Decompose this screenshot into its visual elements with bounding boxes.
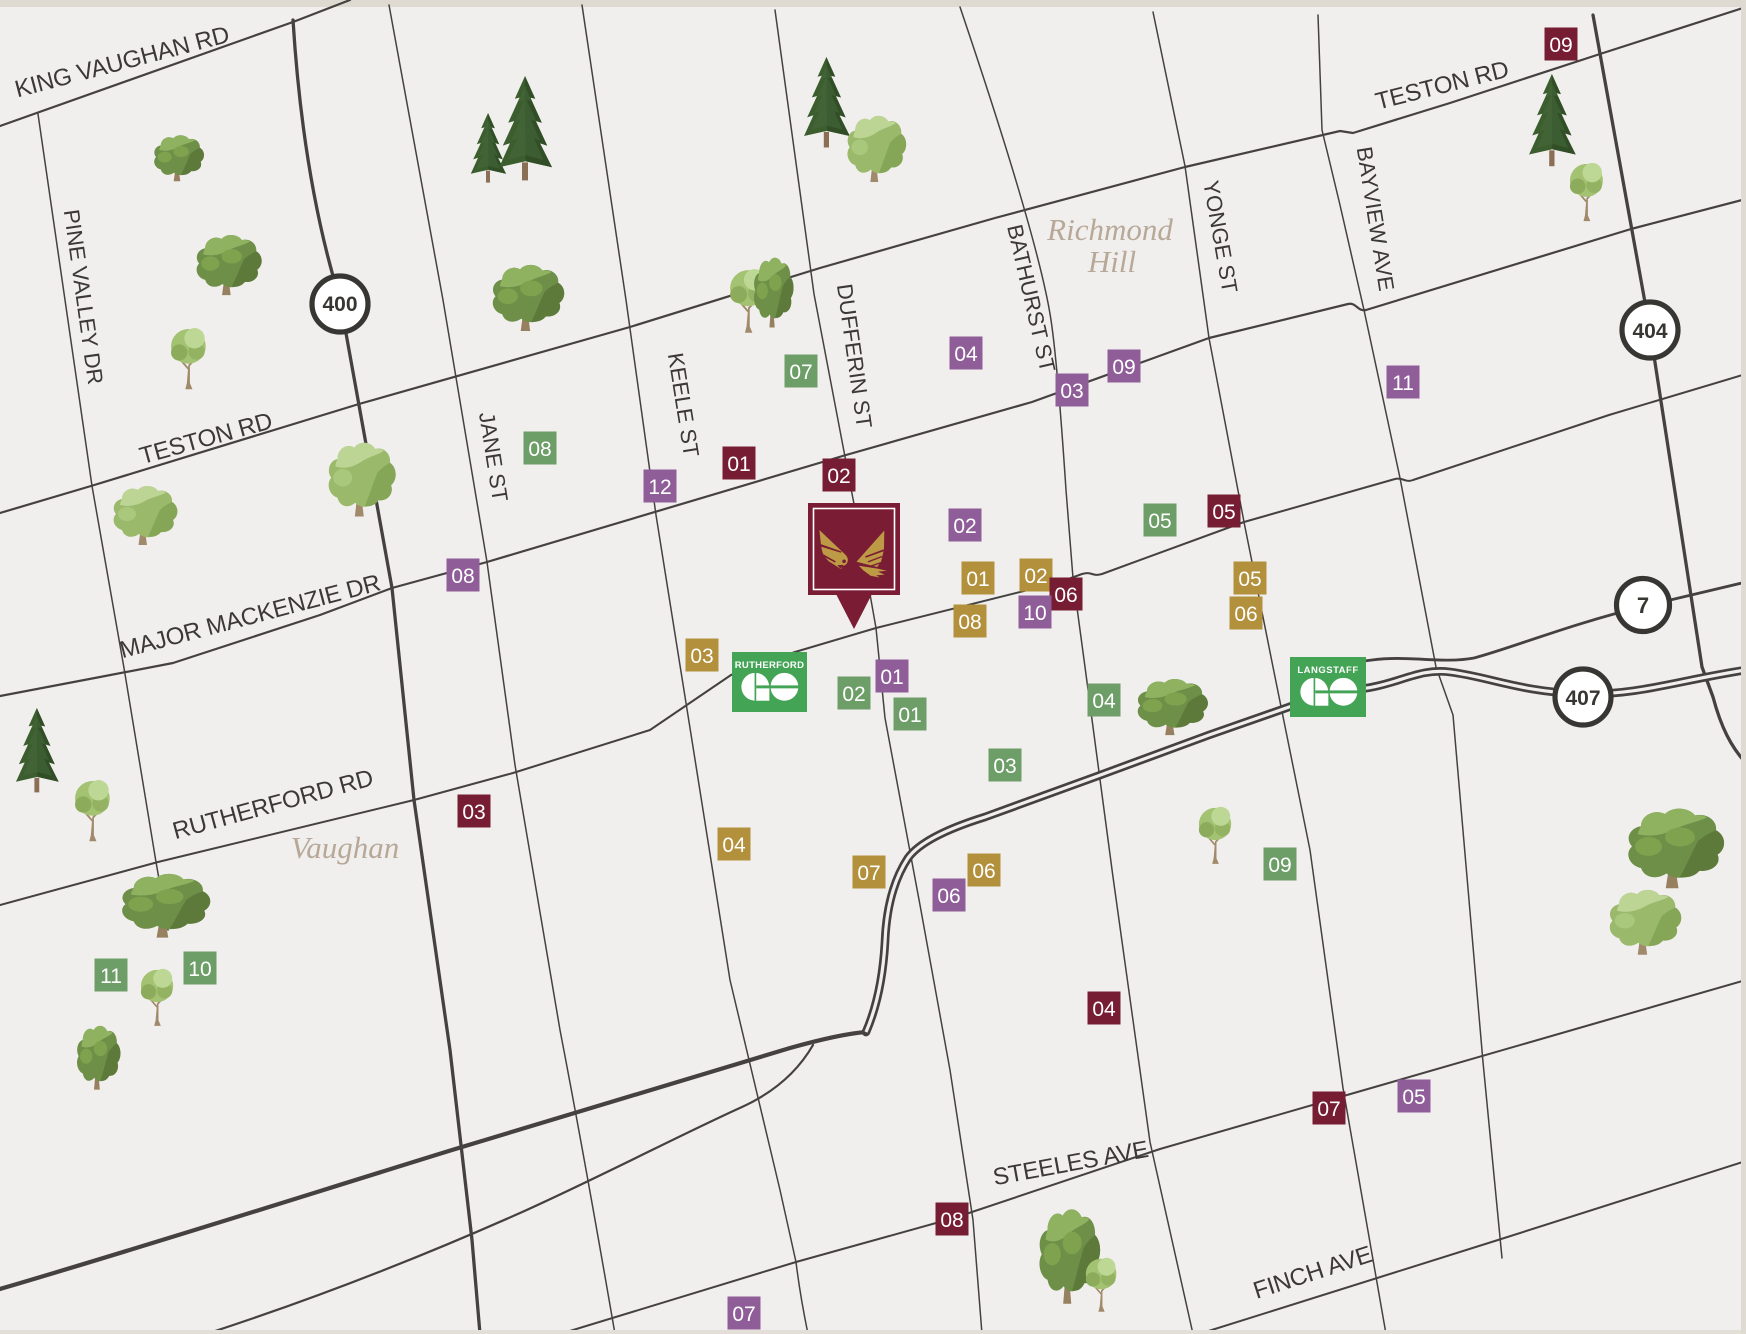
svg-text:11: 11 [1392, 372, 1414, 395]
svg-text:02: 02 [953, 515, 976, 538]
svg-text:Vaughan: Vaughan [291, 830, 400, 865]
svg-text:04: 04 [954, 343, 978, 366]
svg-text:Hill: Hill [1087, 244, 1136, 279]
svg-text:09: 09 [1268, 854, 1291, 877]
svg-text:02: 02 [1024, 565, 1047, 588]
svg-text:7: 7 [1637, 593, 1649, 618]
svg-text:02: 02 [827, 465, 850, 488]
svg-text:12: 12 [648, 476, 671, 499]
svg-text:08: 08 [528, 438, 551, 461]
svg-text:03: 03 [690, 645, 713, 668]
svg-text:05: 05 [1212, 501, 1235, 524]
svg-text:407: 407 [1565, 687, 1600, 710]
svg-text:01: 01 [898, 704, 921, 727]
svg-text:06: 06 [972, 860, 995, 883]
svg-text:10: 10 [188, 958, 211, 981]
svg-text:05: 05 [1238, 568, 1261, 591]
svg-text:04: 04 [1092, 998, 1116, 1021]
svg-text:07: 07 [732, 1303, 755, 1326]
svg-text:LANGSTAFF: LANGSTAFF [1297, 665, 1358, 676]
svg-text:04: 04 [1092, 690, 1116, 713]
svg-text:01: 01 [880, 666, 903, 689]
svg-text:03: 03 [1060, 380, 1083, 403]
svg-text:404: 404 [1632, 320, 1667, 343]
svg-text:07: 07 [1317, 1098, 1340, 1121]
svg-text:10: 10 [1023, 602, 1046, 625]
svg-text:RUTHERFORD: RUTHERFORD [735, 660, 805, 671]
svg-text:01: 01 [727, 453, 750, 476]
svg-text:01: 01 [966, 568, 989, 591]
svg-text:08: 08 [958, 611, 981, 634]
svg-text:04: 04 [722, 834, 746, 857]
svg-text:03: 03 [993, 755, 1016, 778]
svg-text:06: 06 [1054, 584, 1077, 607]
svg-text:09: 09 [1112, 356, 1135, 379]
svg-text:11: 11 [100, 965, 122, 988]
svg-text:07: 07 [789, 361, 812, 384]
svg-text:08: 08 [451, 565, 474, 588]
svg-text:05: 05 [1148, 510, 1171, 533]
svg-text:09: 09 [1549, 34, 1572, 57]
svg-text:02: 02 [842, 683, 865, 706]
svg-text:05: 05 [1402, 1086, 1425, 1109]
svg-text:06: 06 [937, 885, 960, 908]
svg-text:400: 400 [322, 293, 357, 316]
svg-text:Richmond: Richmond [1046, 212, 1173, 247]
svg-text:08: 08 [940, 1209, 963, 1232]
svg-text:06: 06 [1234, 603, 1257, 626]
svg-text:03: 03 [462, 801, 485, 824]
svg-text:07: 07 [857, 862, 880, 885]
